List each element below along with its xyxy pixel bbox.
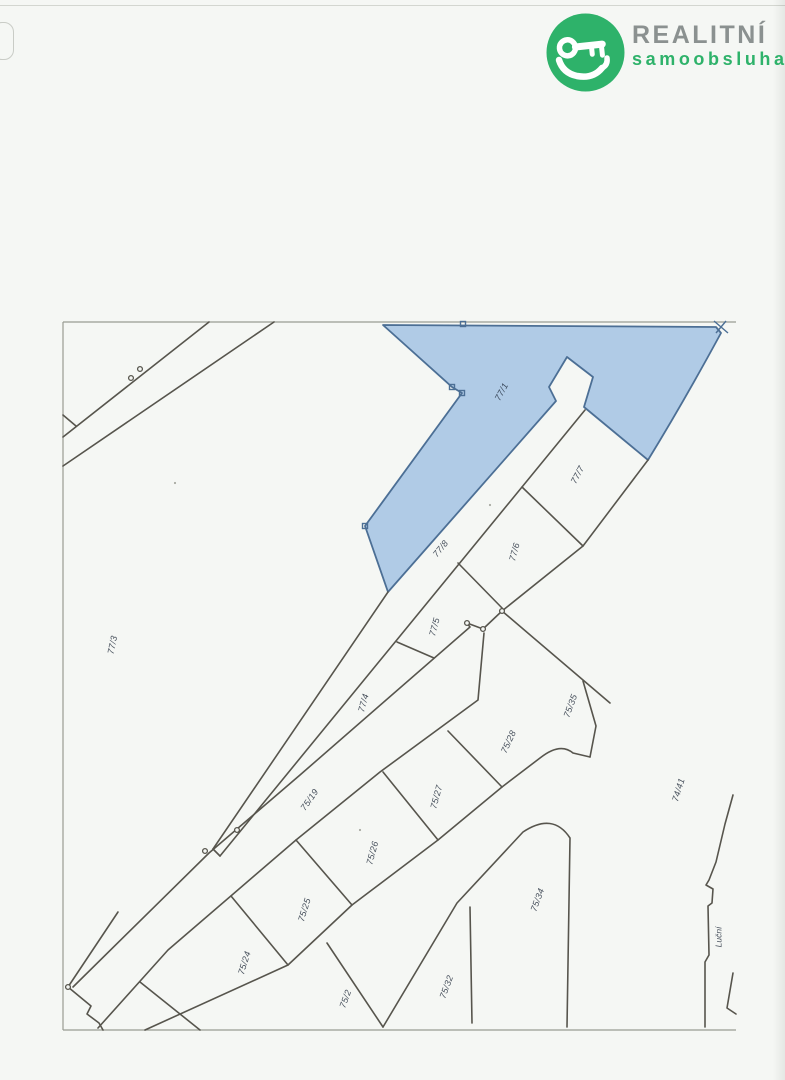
parcel-label-74-41: 74/41	[670, 777, 687, 803]
parcel-boundary	[63, 322, 209, 437]
parcel-label-77-4: 77/4	[356, 693, 371, 714]
parcel-boundary	[98, 633, 484, 1028]
parcel-label-77-3: 77/3	[106, 635, 120, 655]
parcel-label-77-6: 77/6	[507, 542, 522, 563]
parcel-boundary	[448, 731, 502, 787]
parcel-boundary	[502, 611, 610, 703]
parcel-label-75-2: 75/2	[338, 988, 354, 1009]
parcel-boundary	[327, 943, 383, 1027]
parcel-boundary	[470, 907, 472, 1023]
parcel-label-77-5: 77/5	[427, 616, 442, 637]
parcel-boundary	[68, 987, 103, 1030]
hand-holding-key-icon	[546, 13, 625, 92]
parcel-label-75-26: 75/26	[364, 840, 380, 866]
parcel-label-75-25: 75/25	[296, 896, 313, 923]
scan-speck	[174, 482, 176, 484]
scan-speck	[489, 504, 491, 506]
parcel-boundary	[63, 322, 274, 466]
survey-point-marker	[481, 627, 486, 632]
parcel-boundary	[522, 487, 583, 546]
survey-point-marker	[129, 376, 134, 381]
parcel-label-77-7: 77/7	[569, 463, 587, 485]
parcel-boundary	[145, 749, 590, 1030]
survey-point-marker	[235, 828, 240, 833]
scan-speck	[359, 829, 361, 831]
parcel-label-75-27: 75/27	[428, 783, 444, 809]
parcel-boundary	[296, 840, 352, 905]
parcel-label-75-34: 75/34	[529, 887, 547, 913]
parcel-boundary	[397, 642, 434, 658]
parcel-boundary	[231, 896, 288, 965]
parcel-boundary	[583, 681, 596, 757]
survey-point-marker	[465, 621, 470, 626]
realitni-samoobsluha-logo: REALITNÍ samoobsluha	[546, 13, 778, 95]
survey-point-marker	[500, 609, 505, 614]
parcel-boundary	[213, 849, 220, 856]
cadastral-map: 77/177/777/677/877/577/477/375/1975/3575…	[0, 0, 785, 1080]
highlighted-parcel	[365, 325, 721, 592]
parcel-boundary	[140, 982, 200, 1030]
parcel-label-75-28: 75/28	[499, 729, 518, 755]
logo-title: REALITNÍ	[632, 22, 782, 48]
street-label-lucni: Luční	[713, 925, 723, 947]
parcel-label-75-32: 75/32	[438, 974, 456, 1000]
survey-point-marker	[66, 985, 71, 990]
parcel-label-75-35: 75/35	[562, 692, 580, 719]
survey-point-marker	[138, 367, 143, 372]
parcel-label-75-19: 75/19	[299, 787, 321, 812]
parcel-boundary	[383, 823, 570, 1027]
parcel-boundary	[63, 415, 76, 426]
logo-subtitle: samoobsluha	[632, 48, 782, 71]
parcel-boundary	[705, 795, 733, 1027]
survey-point-marker	[203, 849, 208, 854]
parcel-boundary	[727, 973, 736, 1014]
parcel-boundary	[458, 563, 504, 610]
parcel-label-75-24: 75/24	[236, 950, 253, 976]
scanned-page: { "logo": { "title": "REALITNÍ", "subtit…	[0, 0, 785, 1080]
